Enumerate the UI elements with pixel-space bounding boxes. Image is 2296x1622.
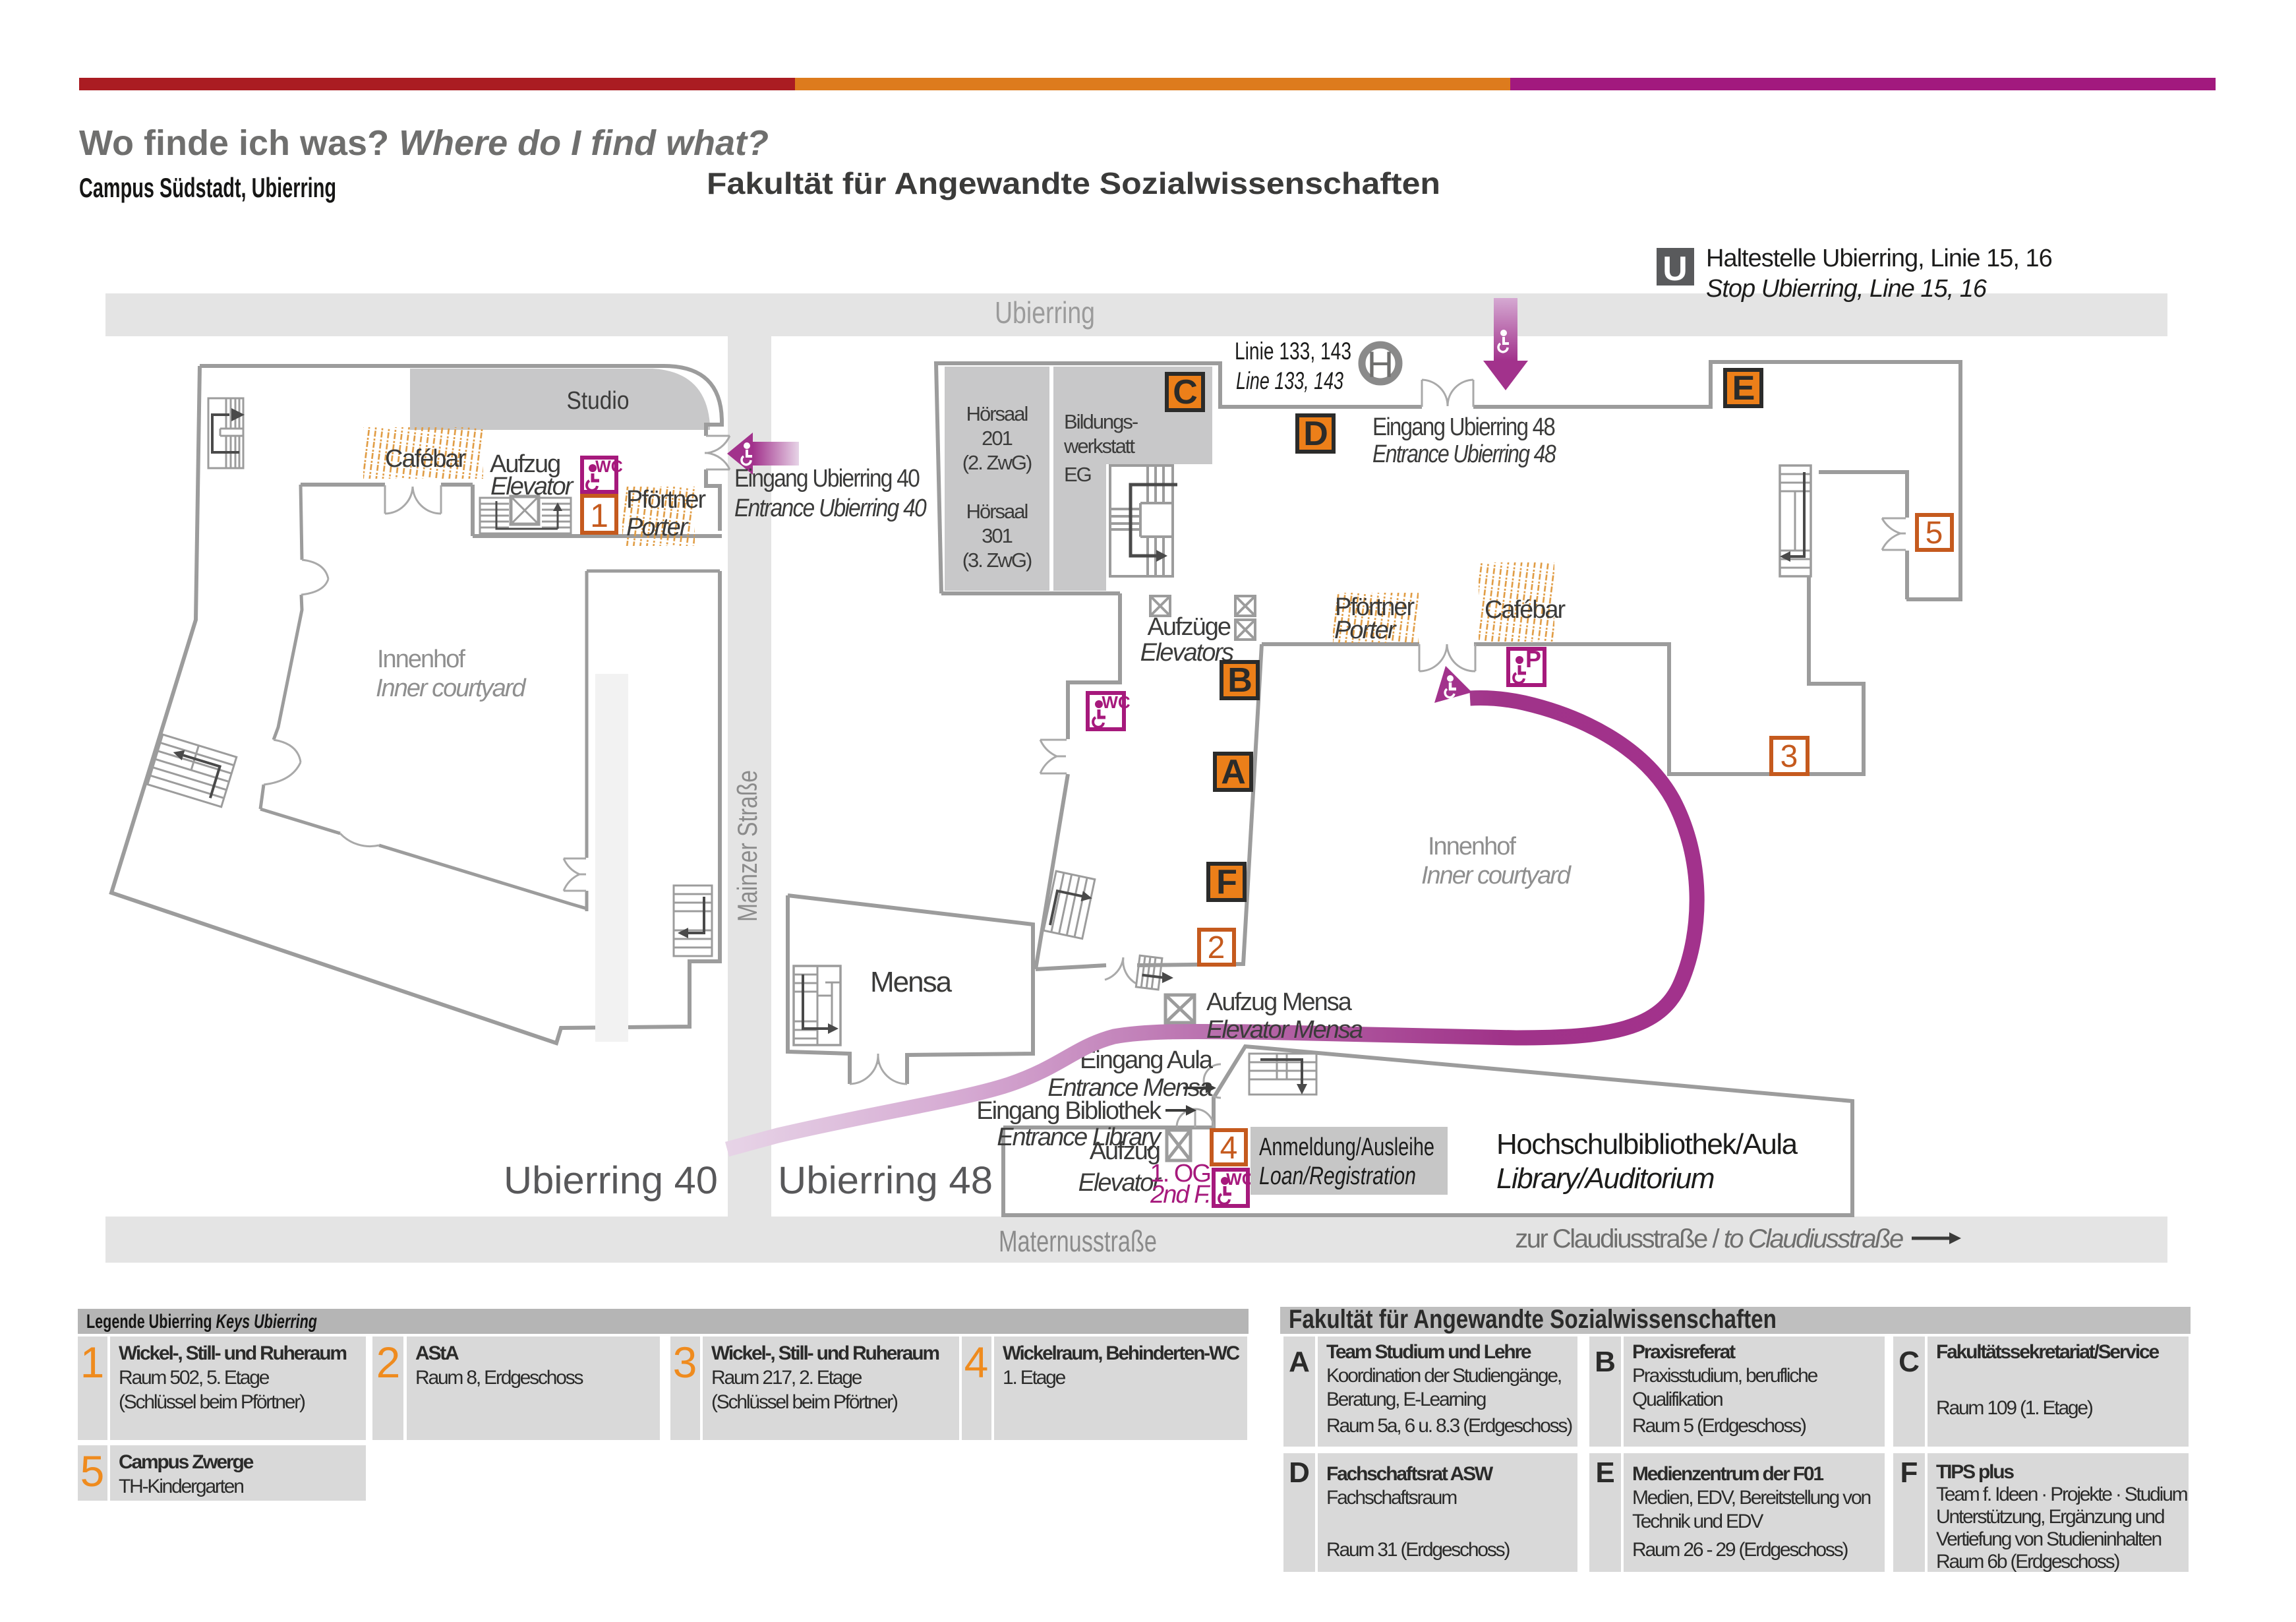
svg-text:F: F	[1216, 863, 1237, 901]
svg-text:Aufzug Mensa: Aufzug Mensa	[1206, 988, 1353, 1016]
svg-text:AStA: AStA	[415, 1342, 459, 1364]
svg-text:(3. ZwG): (3. ZwG)	[962, 549, 1032, 572]
svg-text:A: A	[1221, 753, 1246, 791]
svg-text:Hörsaal: Hörsaal	[966, 500, 1028, 523]
svg-text:Entrance Ubierring 40: Entrance Ubierring 40	[734, 495, 927, 522]
svg-text:Wickelraum, Behinderten-WC: Wickelraum, Behinderten-WC	[1003, 1342, 1240, 1364]
svg-text:Maternusstraße: Maternusstraße	[999, 1224, 1157, 1258]
svg-text:Wickel-, Still- und Ruheraum: Wickel-, Still- und Ruheraum	[119, 1342, 346, 1364]
svg-text:2nd F.: 2nd F.	[1150, 1181, 1210, 1209]
svg-text:1. Etage: 1. Etage	[1003, 1367, 1066, 1389]
svg-text:Team f. Ideen · Projekte · Stu: Team f. Ideen · Projekte · Studium	[1936, 1484, 2188, 1505]
svg-text:Haltestelle Ubierring, Linie 1: Haltestelle Ubierring, Linie 15, 16	[1706, 245, 2052, 272]
svg-text:Eingang Ubierring 48: Eingang Ubierring 48	[1372, 413, 1555, 441]
svg-text:Technik und EDV: Technik und EDV	[1632, 1511, 1763, 1532]
svg-text:Aufzug: Aufzug	[1090, 1137, 1160, 1165]
svg-text:Aufzüge: Aufzüge	[1148, 613, 1231, 641]
svg-text:C: C	[1899, 1346, 1920, 1378]
svg-text:4: 4	[1220, 1131, 1238, 1166]
svg-text:Beratung, E-Learning: Beratung, E-Learning	[1326, 1389, 1486, 1410]
svg-text:Ubierring 48: Ubierring 48	[778, 1159, 993, 1202]
svg-text:Praxisreferat: Praxisreferat	[1632, 1341, 1736, 1363]
svg-text:Campus Zwerge: Campus Zwerge	[119, 1451, 254, 1473]
svg-text:Linie 133, 143: Linie 133, 143	[1235, 338, 1351, 365]
svg-text:Inner courtyard: Inner courtyard	[1421, 862, 1572, 889]
svg-text:Legende Ubierring Keys Ubierri: Legende Ubierring Keys Ubierring	[86, 1311, 317, 1333]
svg-text:Unterstützung, Ergänzung und: Unterstützung, Ergänzung und	[1936, 1506, 2164, 1528]
svg-text:5: 5	[1926, 516, 1943, 551]
svg-text:Raum 6b (Erdgeschoss): Raum 6b (Erdgeschoss)	[1936, 1551, 2119, 1573]
svg-text:E: E	[1595, 1457, 1614, 1489]
svg-text:3: 3	[1781, 739, 1798, 774]
svg-text:Raum 26 - 29 (Erdgeschoss): Raum 26 - 29 (Erdgeschoss)	[1632, 1539, 1848, 1561]
svg-text:Loan/Registration: Loan/Registration	[1259, 1162, 1416, 1190]
svg-text:A: A	[1289, 1346, 1310, 1378]
svg-text:Stop Ubierring, Line 15, 16: Stop Ubierring, Line 15, 16	[1706, 275, 1987, 303]
svg-text:Mainzer Straße: Mainzer Straße	[732, 770, 763, 922]
svg-text:Ubierring: Ubierring	[995, 295, 1095, 330]
svg-text:Campus Südstadt, Ubierring: Campus Südstadt, Ubierring	[79, 172, 336, 203]
svg-text:zur Claudiusstraße / to Claudi: zur Claudiusstraße / to Claudiusstraße	[1515, 1224, 1903, 1253]
svg-text:Vertiefung von Studieninhalten: Vertiefung von Studieninhalten	[1936, 1528, 2161, 1550]
svg-text:Elevator: Elevator	[1078, 1169, 1162, 1197]
svg-text:Eingang Ubierring 40: Eingang Ubierring 40	[734, 465, 920, 493]
svg-text:Wo finde ich was? Where do I f: Wo finde ich was? Where do I find what?	[79, 123, 769, 163]
svg-text:(2. ZwG): (2. ZwG)	[962, 451, 1032, 474]
svg-text:D: D	[1303, 415, 1328, 453]
svg-text:Anmeldung/Ausleihe: Anmeldung/Ausleihe	[1259, 1133, 1434, 1161]
svg-text:Innenhof: Innenhof	[1428, 833, 1516, 860]
svg-text:Ubierring 40: Ubierring 40	[504, 1159, 718, 1202]
svg-text:Team Studium und Lehre: Team Studium und Lehre	[1326, 1341, 1531, 1363]
svg-text:Studio: Studio	[567, 387, 630, 415]
svg-text:Cafébar: Cafébar	[385, 445, 467, 473]
svg-text:Raum 5a, 6 u. 8.3 (Erdgeschoss: Raum 5a, 6 u. 8.3 (Erdgeschoss)	[1326, 1415, 1572, 1437]
svg-text:Mensa: Mensa	[870, 966, 953, 998]
svg-text:201: 201	[982, 427, 1012, 450]
svg-text:Porter: Porter	[626, 514, 689, 541]
svg-text:Fakultät für Angewandte Sozial: Fakultät für Angewandte Sozialwissenscha…	[1289, 1305, 1777, 1334]
svg-text:Medienzentrum der F01: Medienzentrum der F01	[1632, 1463, 1823, 1485]
svg-text:Medien, EDV, Bereitstellung vo: Medien, EDV, Bereitstellung von	[1632, 1487, 1870, 1509]
svg-text:4: 4	[964, 1338, 989, 1387]
svg-text:2: 2	[376, 1338, 401, 1387]
svg-text:Innenhof: Innenhof	[377, 646, 465, 673]
svg-text:Hörsaal: Hörsaal	[966, 402, 1028, 425]
svg-text:Praxisstudium, berufliche: Praxisstudium, berufliche	[1632, 1365, 1818, 1387]
svg-text:Raum 8, Erdgeschoss: Raum 8, Erdgeschoss	[415, 1367, 583, 1389]
svg-text:Line 133, 143: Line 133, 143	[1236, 367, 1343, 394]
svg-text:Fachschaftsraum: Fachschaftsraum	[1326, 1487, 1457, 1509]
svg-text:P: P	[1525, 646, 1541, 673]
svg-text:Koordination der Studiengänge,: Koordination der Studiengänge,	[1326, 1365, 1561, 1387]
svg-text:Pförtner: Pförtner	[626, 486, 707, 514]
svg-text:1: 1	[80, 1338, 105, 1387]
svg-text:301: 301	[982, 524, 1012, 547]
svg-text:(Schlüssel beim Pförtner): (Schlüssel beim Pförtner)	[711, 1391, 898, 1413]
svg-text:F: F	[1900, 1457, 1918, 1489]
svg-text:WC: WC	[595, 458, 623, 476]
svg-text:WC: WC	[1226, 1170, 1254, 1189]
svg-text:Raum 217, 2. Etage: Raum 217, 2. Etage	[711, 1367, 862, 1389]
svg-text:Elevator Mensa: Elevator Mensa	[1206, 1016, 1363, 1044]
svg-text:5: 5	[80, 1447, 105, 1495]
svg-text:Library/Auditorium: Library/Auditorium	[1496, 1162, 1714, 1195]
svg-text:Raum 109 (1. Etage): Raum 109 (1. Etage)	[1936, 1397, 2093, 1419]
svg-text:werkstatt: werkstatt	[1063, 435, 1135, 458]
svg-text:E: E	[1732, 369, 1755, 407]
svg-text:TH-Kindergarten: TH-Kindergarten	[119, 1476, 243, 1497]
svg-text:Bildungs-: Bildungs-	[1064, 410, 1138, 433]
svg-text:Cafébar: Cafébar	[1485, 596, 1566, 624]
svg-text:Wickel-, Still- und Ruheraum: Wickel-, Still- und Ruheraum	[711, 1342, 939, 1364]
svg-text:H: H	[1367, 344, 1394, 385]
svg-text:U: U	[1663, 250, 1688, 288]
svg-text:Raum 5 (Erdgeschoss): Raum 5 (Erdgeschoss)	[1632, 1415, 1806, 1437]
svg-text:Porter: Porter	[1334, 616, 1397, 644]
svg-text:Fakultätssekretariat/Service: Fakultätssekretariat/Service	[1936, 1341, 2159, 1363]
svg-text:Inner courtyard: Inner courtyard	[376, 675, 527, 702]
svg-text:B: B	[1595, 1346, 1616, 1378]
svg-text:TIPS plus: TIPS plus	[1936, 1461, 2014, 1483]
svg-text:1: 1	[590, 497, 608, 534]
svg-text:Eingang Aula: Eingang Aula	[1080, 1046, 1214, 1074]
svg-text:EG: EG	[1064, 463, 1091, 486]
svg-text:Raum 502, 5. Etage: Raum 502, 5. Etage	[119, 1367, 270, 1389]
svg-text:Fakultät für Angewandte Sozial: Fakultät für Angewandte Sozialwissenscha…	[707, 166, 1440, 200]
svg-text:WC: WC	[1102, 692, 1131, 712]
svg-text:2: 2	[1208, 930, 1225, 965]
svg-text:Entrance Ubierring 48: Entrance Ubierring 48	[1372, 440, 1556, 468]
svg-text:Qualifikation: Qualifikation	[1632, 1389, 1722, 1410]
svg-text:D: D	[1289, 1457, 1310, 1489]
svg-text:Eingang Bibliothek: Eingang Bibliothek	[976, 1097, 1162, 1125]
svg-text:Raum 31 (Erdgeschoss): Raum 31 (Erdgeschoss)	[1326, 1539, 1510, 1561]
svg-text:(Schlüssel beim Pförtner): (Schlüssel beim Pförtner)	[119, 1391, 305, 1413]
svg-text:Fachschaftsrat ASW: Fachschaftsrat ASW	[1326, 1463, 1494, 1485]
svg-text:C: C	[1173, 373, 1198, 411]
svg-text:3: 3	[673, 1338, 697, 1387]
svg-text:B: B	[1227, 661, 1252, 700]
svg-text:Hochschulbibliothek/Aula: Hochschulbibliothek/Aula	[1496, 1128, 1798, 1160]
